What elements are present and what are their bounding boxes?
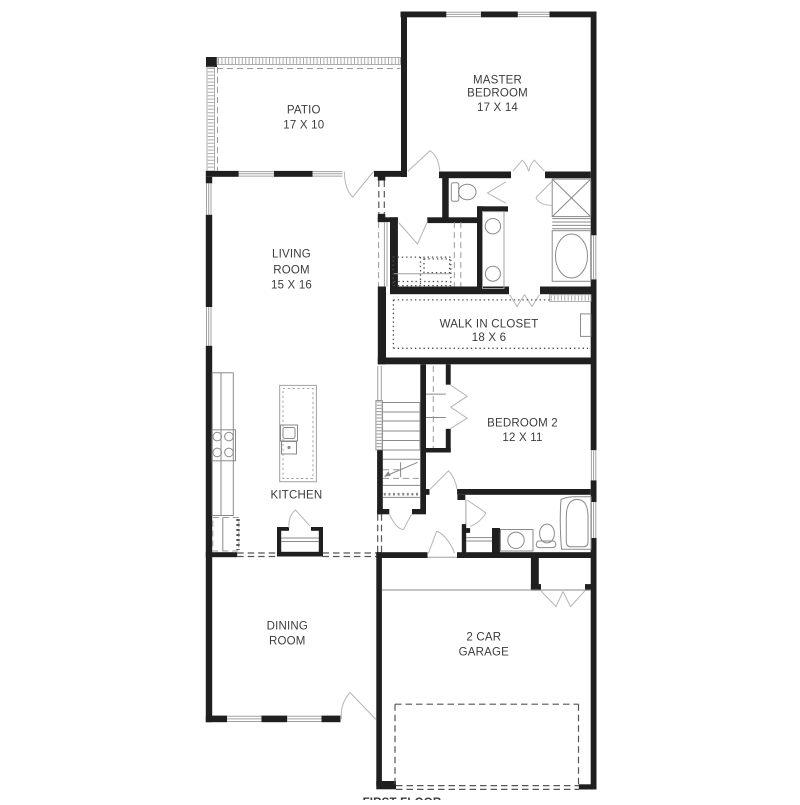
svg-text:ROOM: ROOM [273,265,310,277]
svg-text:GARAGE: GARAGE [459,646,510,658]
svg-text:MASTER: MASTER [473,75,522,87]
svg-text:17 X 10: 17 X 10 [283,120,324,132]
svg-text:KITCHEN: KITCHEN [271,490,323,502]
svg-text:LIVING: LIVING [272,248,311,260]
svg-text:BEDROOM: BEDROOM [467,88,528,100]
svg-text:2 CAR: 2 CAR [466,632,501,644]
svg-text:15 X 16: 15 X 16 [271,280,312,292]
svg-text:12 X 11: 12 X 11 [502,432,542,444]
svg-text:BEDROOM 2: BEDROOM 2 [487,418,558,430]
svg-text:DINING: DINING [267,620,308,632]
svg-text:PATIO: PATIO [287,105,321,117]
svg-text:18 X 6: 18 X 6 [472,332,506,344]
svg-text:17 X 14: 17 X 14 [477,102,518,114]
svg-text:WALK IN CLOSET: WALK IN CLOSET [440,318,539,330]
svg-text:ROOM: ROOM [269,635,306,647]
